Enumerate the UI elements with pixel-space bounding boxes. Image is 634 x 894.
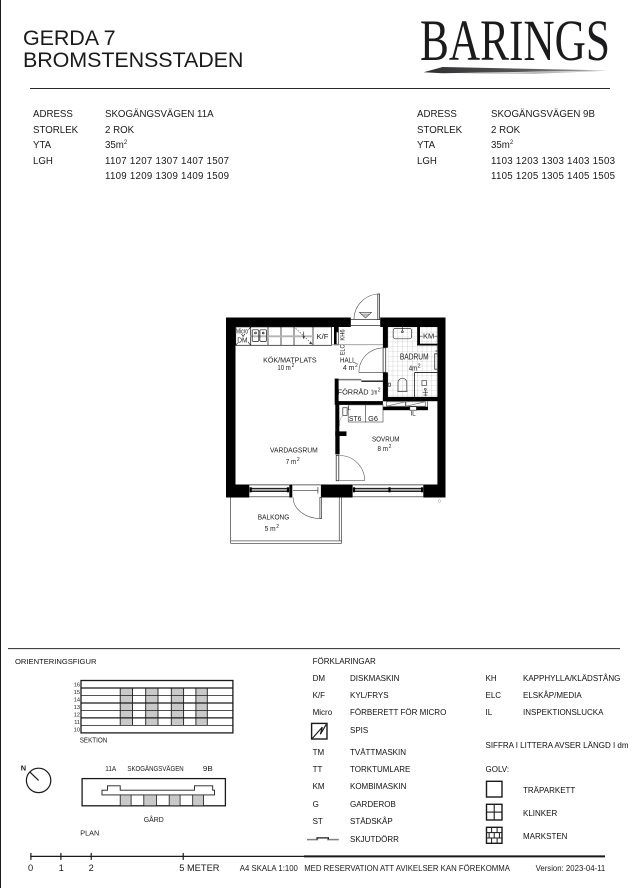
- svg-text:2: 2: [297, 457, 300, 463]
- svg-text:BADRUM: BADRUM: [400, 352, 429, 361]
- svg-text:DM: DM: [237, 338, 247, 345]
- svg-text:Micro: Micro: [236, 329, 248, 336]
- svg-text:11A: 11A: [105, 764, 116, 773]
- svg-text:SKOGÄNGSVÄGEN: SKOGÄNGSVÄGEN: [127, 764, 183, 773]
- svg-text:BALKONG: BALKONG: [258, 512, 290, 521]
- svg-text:10 m: 10 m: [277, 363, 290, 372]
- svg-text:8 m: 8 m: [378, 444, 389, 453]
- svg-text:0: 0: [438, 498, 441, 503]
- svg-text:5 METER: 5 METER: [179, 863, 220, 873]
- svg-text:12: 12: [74, 713, 80, 719]
- svg-text:0: 0: [28, 863, 33, 873]
- svg-text:2: 2: [389, 444, 392, 450]
- svg-text:SOVRUM: SOVRUM: [372, 435, 400, 444]
- svg-text:VARDAGSRUM: VARDAGSRUM: [270, 446, 318, 455]
- svg-text:ELC: ELC: [341, 344, 347, 355]
- svg-text:1m: 1m: [371, 388, 378, 397]
- svg-text:PLAN: PLAN: [80, 828, 99, 837]
- svg-text:G6: G6: [368, 416, 378, 423]
- svg-text:1: 1: [59, 863, 64, 873]
- svg-text:11: 11: [74, 720, 80, 726]
- svg-text:5 m: 5 m: [265, 524, 276, 533]
- svg-text:13: 13: [74, 705, 80, 711]
- svg-text:9B: 9B: [203, 764, 213, 773]
- svg-text:10: 10: [74, 728, 80, 734]
- svg-text:2: 2: [355, 363, 358, 369]
- svg-text:L: L: [348, 406, 351, 412]
- svg-text:2: 2: [89, 863, 94, 873]
- svg-text:KM: KM: [423, 333, 434, 340]
- svg-text:2: 2: [292, 363, 295, 369]
- svg-text:MED RESERVATION ATT AVIKELSER: MED RESERVATION ATT AVIKELSER KAN FÖREKO…: [304, 864, 511, 873]
- svg-text:N: N: [21, 764, 26, 773]
- svg-text:2: 2: [378, 388, 381, 394]
- svg-text:Version: 2023-04-11: Version: 2023-04-11: [536, 864, 606, 873]
- svg-text:FÖRRÅD: FÖRRÅD: [338, 388, 369, 397]
- svg-text:7 m: 7 m: [286, 457, 297, 466]
- svg-text:4 m: 4 m: [343, 363, 355, 372]
- svg-text:GÅRD: GÅRD: [144, 815, 164, 824]
- svg-text:K/F: K/F: [317, 332, 329, 341]
- svg-text:A4 SKALA 1:100: A4 SKALA 1:100: [240, 864, 299, 873]
- svg-text:2: 2: [418, 363, 421, 369]
- svg-text:14: 14: [74, 698, 80, 704]
- svg-text:16: 16: [74, 683, 80, 689]
- svg-text:15: 15: [74, 690, 80, 696]
- svg-text:IL: IL: [410, 410, 416, 417]
- svg-text:4m: 4m: [409, 363, 418, 372]
- svg-text:ST6: ST6: [349, 416, 362, 423]
- svg-text:2: 2: [276, 524, 279, 530]
- svg-text:KH6: KH6: [341, 329, 347, 341]
- svg-text:SEKTION: SEKTION: [80, 736, 108, 745]
